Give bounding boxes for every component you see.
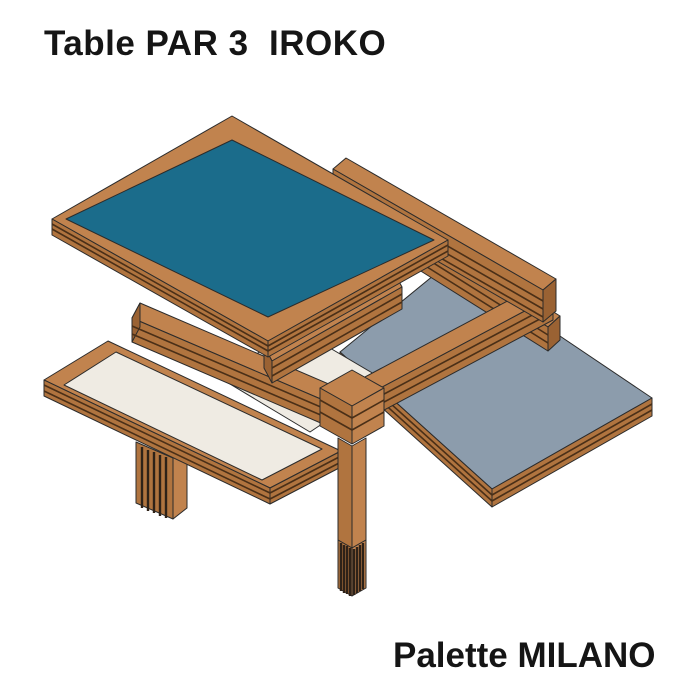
center-leg: [338, 438, 366, 596]
table-illustration: [0, 0, 700, 700]
page: Table PAR 3 IROKO Palette MILANO: [0, 0, 700, 700]
caption: Palette MILANO: [393, 636, 656, 676]
